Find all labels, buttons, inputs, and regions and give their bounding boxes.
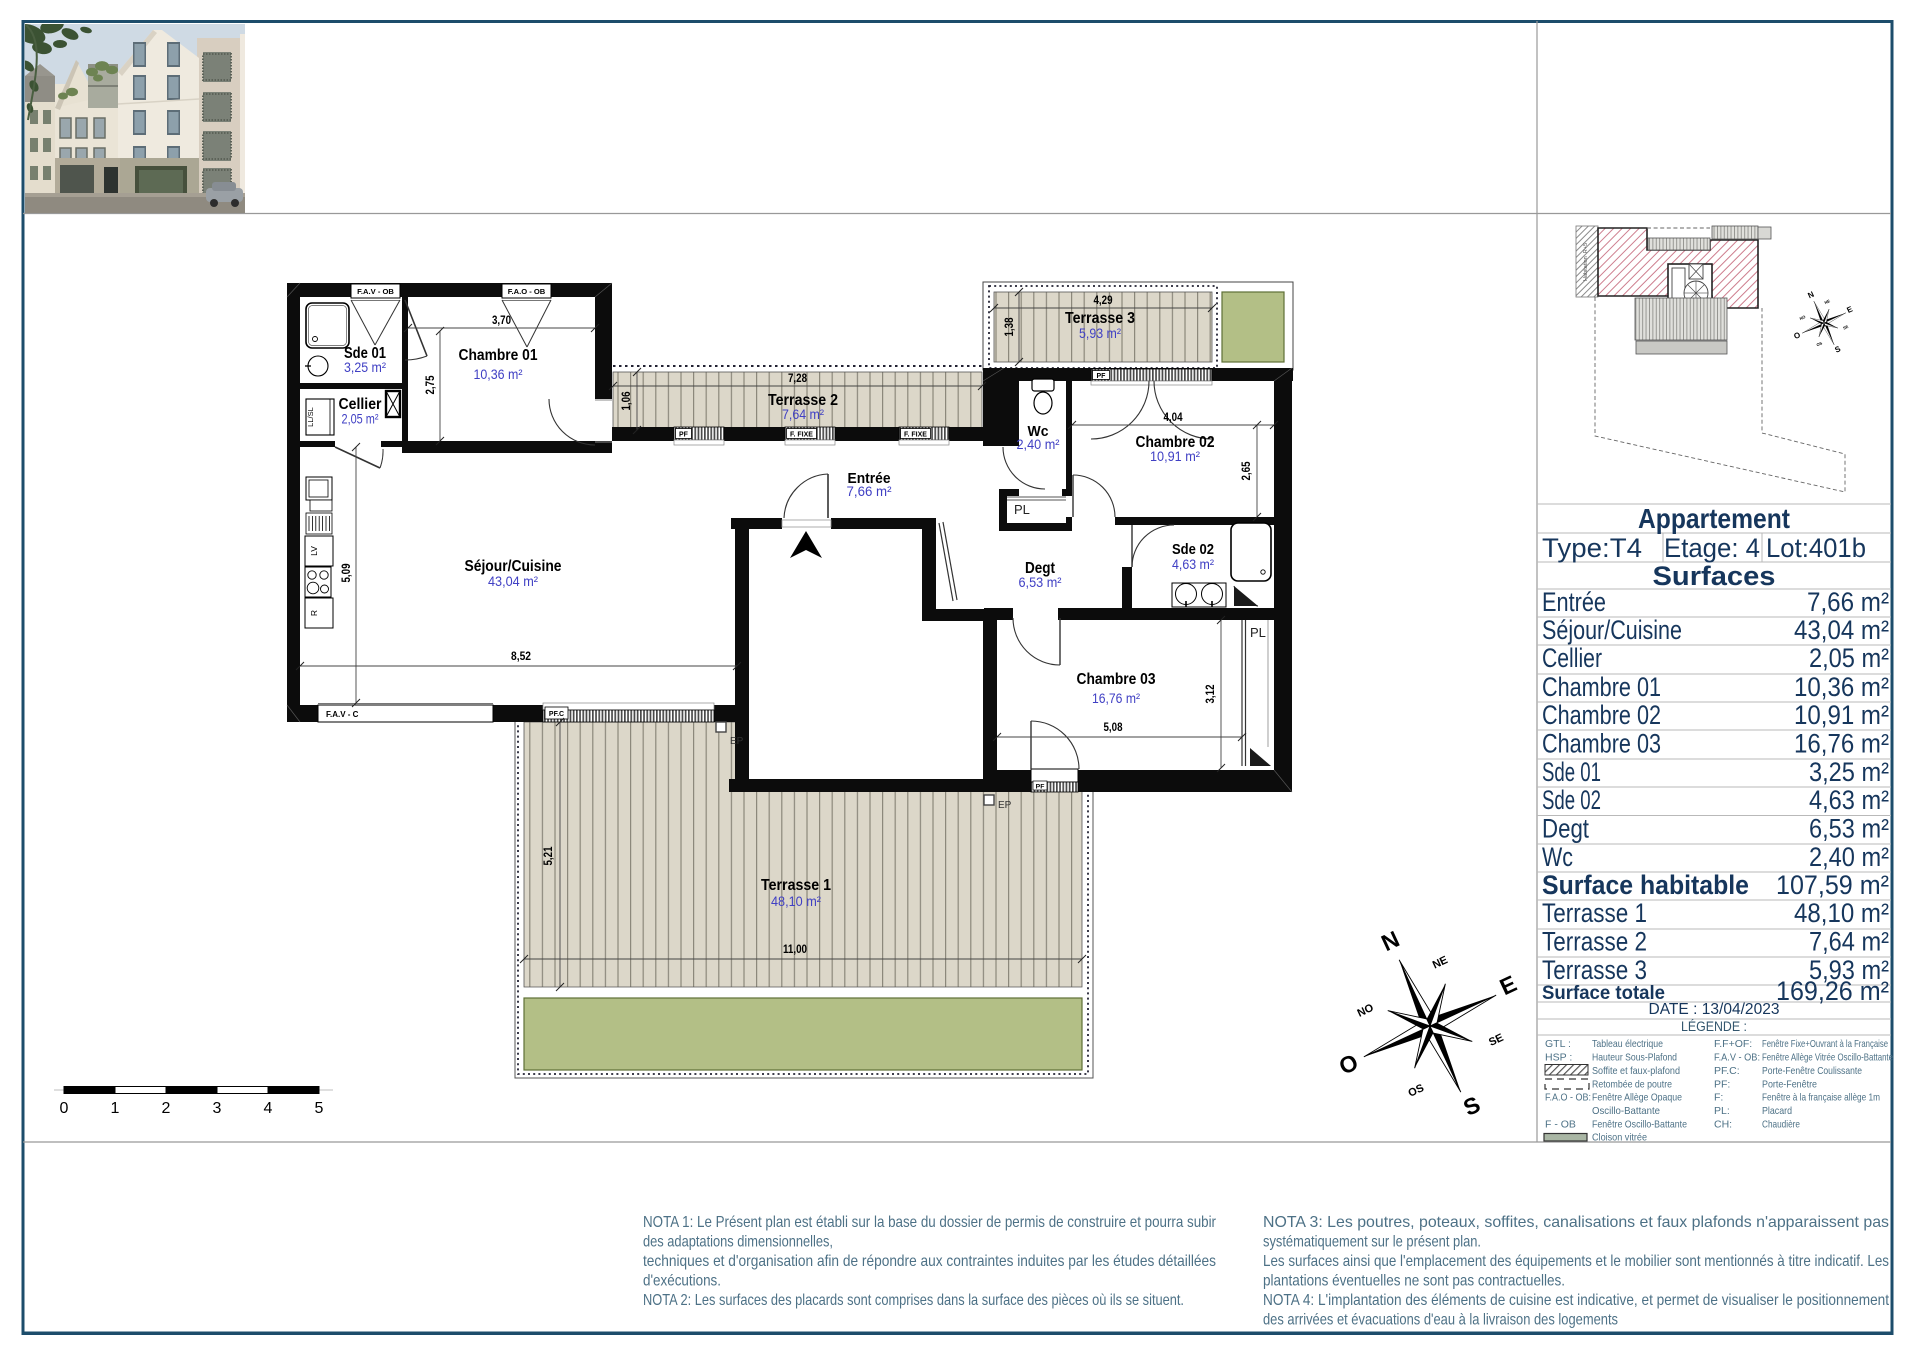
svg-text:2,65: 2,65 (1241, 461, 1253, 481)
svg-text:48,10 m²: 48,10 m² (1794, 898, 1889, 928)
svg-text:F.A.O - OB: F.A.O - OB (508, 287, 546, 296)
svg-text:GTL :: GTL : (1545, 1038, 1571, 1050)
svg-text:1,06: 1,06 (621, 392, 633, 411)
svg-text:3: 3 (213, 1100, 222, 1117)
svg-text:systématiquement sur le présen: systématiquement sur le présent plan. (1263, 1234, 1481, 1251)
svg-text:7,64 m²: 7,64 m² (1809, 927, 1889, 957)
svg-text:HSP :: HSP : (1545, 1052, 1572, 1064)
svg-text:3,70: 3,70 (492, 315, 511, 327)
svg-text:F.A.V - OB: F.A.V - OB (357, 287, 394, 296)
svg-text:Chaudière: Chaudière (1762, 1119, 1800, 1131)
svg-text:des arrivées et évacuations d': des arrivées et évacuations d'eau à la l… (1263, 1312, 1618, 1329)
svg-text:Hauteur Sous-Plafond: Hauteur Sous-Plafond (1592, 1052, 1677, 1064)
svg-text:LÉGENDE :: LÉGENDE : (1681, 1019, 1747, 1034)
svg-text:3,25 m²: 3,25 m² (1809, 757, 1889, 787)
svg-text:d'exécutions.: d'exécutions. (643, 1273, 721, 1290)
svg-text:DATE : 13/04/2023: DATE : 13/04/2023 (1649, 1001, 1780, 1018)
svg-text:2,05 m²: 2,05 m² (1809, 643, 1889, 673)
svg-text:Sde 01: Sde 01 (1542, 757, 1601, 787)
svg-text:Chambre 03: Chambre 03 (1542, 729, 1661, 759)
svg-text:EP: EP (998, 800, 1012, 811)
svg-text:7,28: 7,28 (788, 373, 808, 385)
svg-text:4,63 m²: 4,63 m² (1809, 785, 1889, 815)
svg-text:Fenêtre à la française allège: Fenêtre à la française allège 1m (1762, 1092, 1880, 1104)
svg-text:PL: PL (1250, 625, 1266, 640)
svg-text:PF.C:: PF.C: (1714, 1065, 1740, 1077)
svg-text:NOTA 2: Les surfaces des placa: NOTA 2: Les surfaces des placards sont c… (643, 1292, 1184, 1309)
svg-text:2: 2 (162, 1100, 171, 1117)
svg-text:Retombée de poutre: Retombée de poutre (1592, 1079, 1672, 1091)
svg-text:2,05 m²: 2,05 m² (342, 411, 379, 427)
svg-text:PF:: PF: (1714, 1079, 1730, 1091)
svg-text:Etage: 4: Etage: 4 (1664, 533, 1760, 563)
svg-text:Type:T4: Type:T4 (1542, 533, 1642, 563)
svg-text:3,12: 3,12 (1205, 685, 1217, 704)
svg-text:NOTA 4: L'implantation des élé: NOTA 4: L'implantation des éléments de c… (1263, 1292, 1889, 1309)
svg-text:PL: PL (1014, 502, 1030, 517)
svg-text:Tableau électrique: Tableau électrique (1592, 1038, 1663, 1050)
svg-text:2,75: 2,75 (425, 375, 437, 395)
svg-text:Fenêtre Fixe+Ouvrant à la Fran: Fenêtre Fixe+Ouvrant à la Française (1762, 1038, 1888, 1050)
svg-text:10,91 m²: 10,91 m² (1150, 448, 1200, 464)
svg-text:EP: EP (730, 736, 744, 747)
svg-text:NOTA 3: Les poutres, poteaux,: NOTA 3: Les poutres, poteaux, soffites, … (1263, 1214, 1889, 1231)
svg-text:Degt: Degt (1542, 814, 1590, 844)
svg-text:PF: PF (1036, 784, 1045, 791)
svg-text:Fenêtre Allège Vitrée Oscillo-: Fenêtre Allège Vitrée Oscillo-Battante (1762, 1052, 1893, 1064)
svg-text:4,29: 4,29 (1094, 295, 1113, 307)
svg-text:des adaptations dimensionnelle: des adaptations dimensionnelles, (643, 1234, 833, 1251)
svg-text:Appartement: Appartement (1638, 503, 1790, 534)
svg-text:R: R (309, 610, 319, 616)
svg-text:5,09: 5,09 (341, 564, 353, 583)
svg-text:2,40 m²: 2,40 m² (1809, 842, 1889, 872)
svg-text:Fenêtre Oscillo-Battante: Fenêtre Oscillo-Battante (1592, 1119, 1687, 1131)
svg-text:7,66 m²: 7,66 m² (1807, 587, 1889, 617)
svg-text:Fenêtre Allège Opaque: Fenêtre Allège Opaque (1592, 1092, 1682, 1104)
svg-text:Les surfaces ainsi que l'empla: Les surfaces ainsi que l'emplacement des… (1263, 1253, 1889, 1270)
svg-text:Surface habitable: Surface habitable (1542, 870, 1749, 900)
svg-text:4,04: 4,04 (1164, 412, 1184, 424)
svg-text:8,52: 8,52 (511, 651, 531, 663)
svg-text:Entrée: Entrée (1542, 587, 1606, 617)
svg-text:Séjour/Cuisine: Séjour/Cuisine (1542, 615, 1682, 645)
svg-text:PF: PF (679, 432, 689, 439)
svg-text:LV: LV (309, 546, 319, 556)
svg-text:Sde 02: Sde 02 (1542, 785, 1601, 815)
svg-text:LL/SL: LL/SL (306, 407, 315, 427)
svg-text:169,26 m²: 169,26 m² (1776, 976, 1889, 1006)
svg-text:5,93 m²: 5,93 m² (1079, 325, 1121, 341)
svg-text:Terrasse 1: Terrasse 1 (761, 877, 831, 894)
svg-text:5: 5 (315, 1100, 324, 1117)
svg-text:10,36 m²: 10,36 m² (1794, 672, 1889, 702)
svg-text:Surfaces: Surfaces (1653, 561, 1776, 591)
svg-text:F.F+OF:: F.F+OF: (1714, 1038, 1752, 1050)
svg-text:10,91 m²: 10,91 m² (1794, 700, 1889, 730)
svg-text:5,21: 5,21 (543, 846, 555, 866)
svg-text:1,38: 1,38 (1004, 317, 1016, 337)
svg-text:3,25 m²: 3,25 m² (344, 359, 386, 375)
svg-text:NOTA 1: Le Présent plan est ét: NOTA 1: Le Présent plan est établi sur l… (643, 1214, 1217, 1231)
svg-text:1: 1 (111, 1100, 120, 1117)
svg-text:F. FIXE: F. FIXE (904, 432, 927, 439)
svg-text:Lot:401b: Lot:401b (1766, 533, 1866, 563)
svg-text:PF: PF (1097, 373, 1107, 380)
svg-text:2,40 m²: 2,40 m² (1017, 436, 1060, 452)
svg-text:10,36 m²: 10,36 m² (474, 366, 523, 382)
svg-text:Chambre 01: Chambre 01 (459, 347, 538, 364)
svg-text:F.A.O - OB:: F.A.O - OB: (1545, 1092, 1591, 1104)
svg-text:16,76 m²: 16,76 m² (1794, 729, 1889, 759)
svg-text:Terrasse 3: Terrasse 3 (1542, 955, 1647, 985)
svg-text:11,00: 11,00 (783, 944, 807, 956)
svg-text:4: 4 (264, 1100, 273, 1117)
svg-text:43,04 m²: 43,04 m² (488, 573, 538, 589)
svg-text:0: 0 (60, 1100, 69, 1117)
svg-text:5,08: 5,08 (1104, 722, 1124, 734)
svg-text:6,53 m²: 6,53 m² (1019, 574, 1062, 590)
svg-text:PF.C: PF.C (549, 711, 564, 718)
svg-text:CH:: CH: (1714, 1119, 1732, 1131)
svg-text:F.A.V - C: F.A.V - C (326, 710, 359, 719)
svg-text:Cloison vitrée: Cloison vitrée (1592, 1132, 1647, 1144)
svg-text:Porte-Fenêtre Coulissante: Porte-Fenêtre Coulissante (1762, 1065, 1862, 1077)
svg-text:Chambre 03: Chambre 03 (1077, 671, 1156, 688)
svg-text:F. FIXE: F. FIXE (790, 432, 813, 439)
svg-text:PL:: PL: (1714, 1105, 1730, 1117)
svg-text:Chambre 01: Chambre 01 (1542, 672, 1661, 702)
svg-text:Surface totale: Surface totale (1542, 982, 1665, 1004)
svg-text:16,76 m²: 16,76 m² (1092, 690, 1140, 706)
svg-text:43,04 m²: 43,04 m² (1794, 615, 1889, 645)
svg-text:7,66 m²: 7,66 m² (847, 483, 892, 499)
svg-text:F.A.V - OB:: F.A.V - OB: (1714, 1052, 1760, 1064)
svg-text:Soffite et faux-plafond: Soffite et faux-plafond (1592, 1065, 1680, 1077)
svg-text:4,63 m²: 4,63 m² (1172, 556, 1214, 572)
svg-text:Terrasse 1: Terrasse 1 (1542, 898, 1647, 928)
svg-text:techniques et d'organisation a: techniques et d'organisation afin de rép… (643, 1253, 1216, 1270)
svg-text:48,10 m²: 48,10 m² (771, 893, 821, 909)
svg-text:Cellier: Cellier (1542, 643, 1602, 673)
svg-text:F - OB: F - OB (1545, 1119, 1576, 1131)
svg-text:F:: F: (1714, 1092, 1723, 1104)
svg-text:Terrasse 2: Terrasse 2 (1542, 927, 1647, 957)
svg-text:Porte-Fenêtre: Porte-Fenêtre (1762, 1079, 1817, 1091)
svg-text:Wc: Wc (1542, 842, 1573, 872)
svg-text:107,59 m²: 107,59 m² (1776, 870, 1889, 900)
svg-text:Chambre 02: Chambre 02 (1542, 700, 1661, 730)
svg-text:6,53 m²: 6,53 m² (1809, 814, 1889, 844)
svg-text:plantations éventuelles ne son: plantations éventuelles ne sont pas cont… (1263, 1273, 1565, 1290)
svg-text:Oscillo-Battante: Oscillo-Battante (1592, 1105, 1660, 1117)
svg-text:7,64 m²: 7,64 m² (782, 406, 824, 422)
svg-text:Placard: Placard (1762, 1105, 1792, 1117)
svg-text:Habitation R+5: Habitation R+5 (1583, 243, 1589, 281)
